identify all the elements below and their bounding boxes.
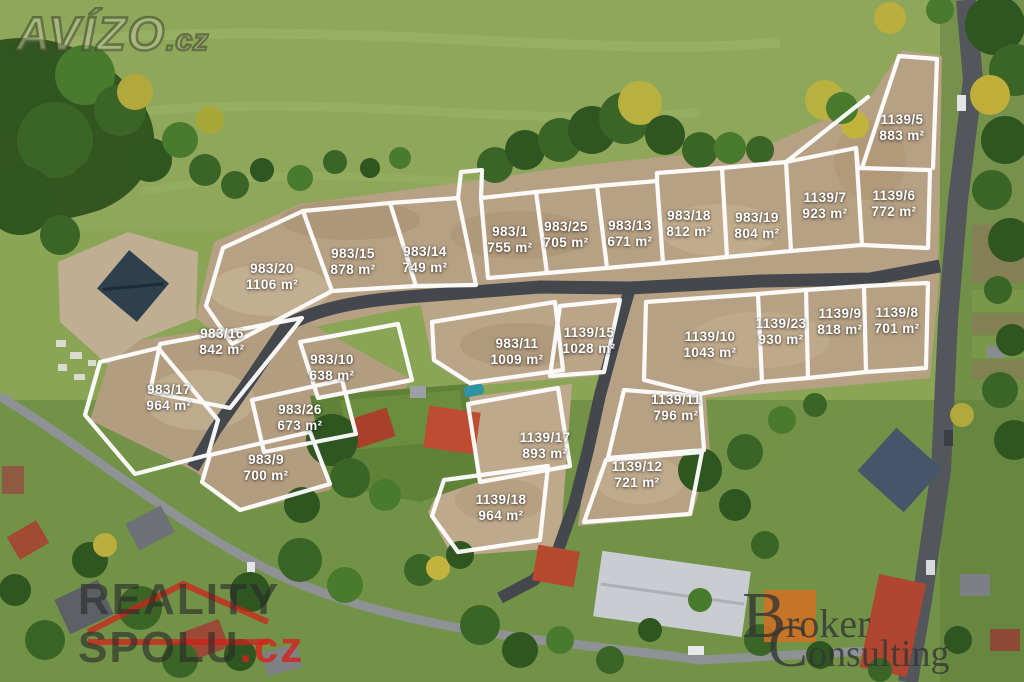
aerial-photo-scene [0, 0, 1024, 682]
aerial-photo-stage: 983/201106 m²983/15878 m²983/14749 m²983… [0, 0, 1024, 682]
